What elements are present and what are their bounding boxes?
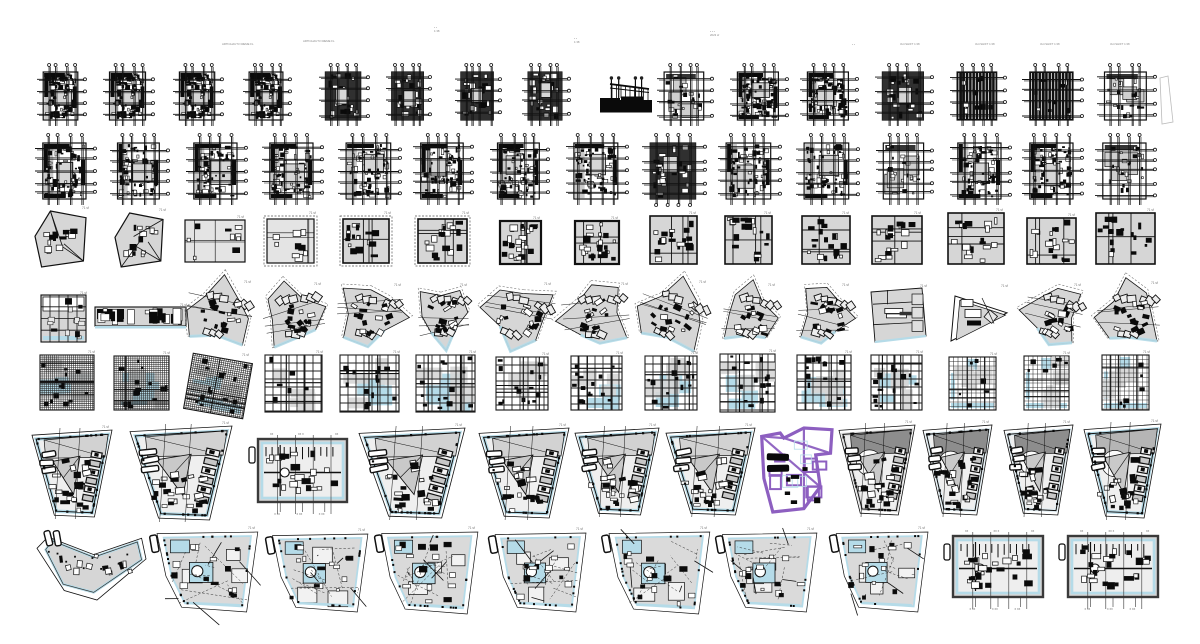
svg-text:71 sf: 71 sf	[764, 211, 771, 215]
svg-text:71 sf: 71 sf	[1068, 213, 1075, 217]
svg-text:71 sf: 71 sf	[699, 280, 706, 284]
svg-text:71 sf: 71 sf	[616, 351, 623, 355]
svg-text:71 sf: 71 sf	[455, 423, 462, 427]
svg-text:71 sf: 71 sf	[768, 283, 775, 287]
svg-text:71 sf: 71 sf	[649, 423, 656, 427]
svg-text:71 sf: 71 sf	[533, 216, 540, 220]
svg-text:71 sf: 71 sf	[394, 283, 401, 287]
svg-text:71 sf: 71 sf	[689, 211, 696, 215]
svg-text:71 sf: 71 sf	[920, 284, 927, 288]
svg-text:* *: * *	[852, 43, 856, 47]
svg-text:xx: xx	[335, 432, 339, 436]
svg-text:71 sf: 71 sf	[462, 211, 469, 215]
svg-text:71 sf: 71 sf	[1063, 351, 1070, 355]
svg-text:x xx: x xx	[297, 512, 303, 516]
svg-text:71 sf: 71 sf	[222, 421, 229, 425]
svg-text:71 sf: 71 sf	[842, 211, 849, 215]
svg-text:71 sf: 71 sf	[248, 526, 255, 530]
svg-text:71 sf: 71 sf	[237, 215, 244, 219]
svg-text:71 sf: 71 sf	[1151, 419, 1158, 423]
svg-text:71 sf: 71 sf	[559, 423, 566, 427]
svg-text:71 sf: 71 sf	[309, 211, 316, 215]
svg-text:71 sf: 71 sf	[102, 425, 109, 429]
svg-text:71 sf: 71 sf	[88, 350, 95, 354]
svg-text:71 sf: 71 sf	[745, 423, 752, 427]
svg-text:71 sf: 71 sf	[1147, 208, 1154, 212]
svg-text:71 sf: 71 sf	[469, 350, 476, 354]
svg-text:3x4 SHIFT 1:38: 3x4 SHIFT 1:38	[1040, 42, 1060, 46]
svg-text:71 sf: 71 sf	[691, 351, 698, 355]
svg-text:71 sf: 71 sf	[159, 208, 166, 212]
svg-text:3x4 SHIFT 1:38: 3x4 SHIFT 1:38	[975, 42, 995, 46]
svg-text:ARTICHAUT3 33EME FL: ARTICHAUT3 33EME FL	[303, 39, 335, 43]
svg-text:xx: xx	[270, 432, 274, 436]
svg-text:71 sf: 71 sf	[244, 280, 251, 284]
svg-text:71 sf: 71 sf	[1151, 281, 1158, 285]
svg-text:71 sf: 71 sf	[996, 208, 1003, 212]
svg-text:71 sf: 71 sf	[982, 420, 989, 424]
svg-text:x xx: x xx	[319, 512, 325, 516]
svg-text:71 sf: 71 sf	[163, 351, 170, 355]
svg-text:71 sf: 71 sf	[180, 303, 187, 307]
svg-text:71 sf: 71 sf	[611, 216, 618, 220]
svg-text:3x4 SHIFT 1:38: 3x4 SHIFT 1:38	[1110, 42, 1130, 46]
svg-text:71 sf: 71 sf	[1074, 283, 1081, 287]
svg-text:xx x: xx x	[298, 432, 304, 436]
svg-text:71 sf: 71 sf	[542, 352, 549, 356]
svg-text:71 sf: 71 sf	[916, 350, 923, 354]
svg-text:71 sf: 71 sf	[384, 211, 391, 215]
svg-text:71 sf: 71 sf	[544, 282, 551, 286]
svg-text:71 sf: 71 sf	[1063, 420, 1070, 424]
svg-text:71 sf: 71 sf	[393, 350, 400, 354]
svg-text:71 sf: 71 sf	[460, 283, 467, 287]
svg-text:3x4 SHIFT 1:38: 3x4 SHIFT 1:38	[900, 42, 920, 46]
svg-text:71 sf: 71 sf	[990, 352, 997, 356]
svg-text:71 sf: 71 sf	[1143, 350, 1150, 354]
svg-text:71 sf: 71 sf	[314, 282, 321, 286]
svg-text:71 sf: 71 sf	[621, 282, 628, 286]
svg-text:71 sf: 71 sf	[82, 206, 89, 210]
svg-text:x xx: x xx	[274, 512, 280, 516]
svg-text:71 sf: 71 sf	[769, 349, 776, 353]
svg-text:71 sf: 71 sf	[845, 350, 852, 354]
svg-text:71 sf: 71 sf	[80, 291, 87, 295]
svg-text:71 sf: 71 sf	[1001, 284, 1008, 288]
svg-text:ARTICHAUT3 33EME FL: ARTICHAUT3 33EME FL	[222, 42, 254, 46]
svg-text:71 sf: 71 sf	[914, 211, 921, 215]
svg-text:71 sf: 71 sf	[842, 283, 849, 287]
svg-text:71 sf: 71 sf	[316, 350, 323, 354]
svg-text:71 sf: 71 sf	[242, 353, 249, 357]
svg-text:71 sf: 71 sf	[905, 420, 912, 424]
